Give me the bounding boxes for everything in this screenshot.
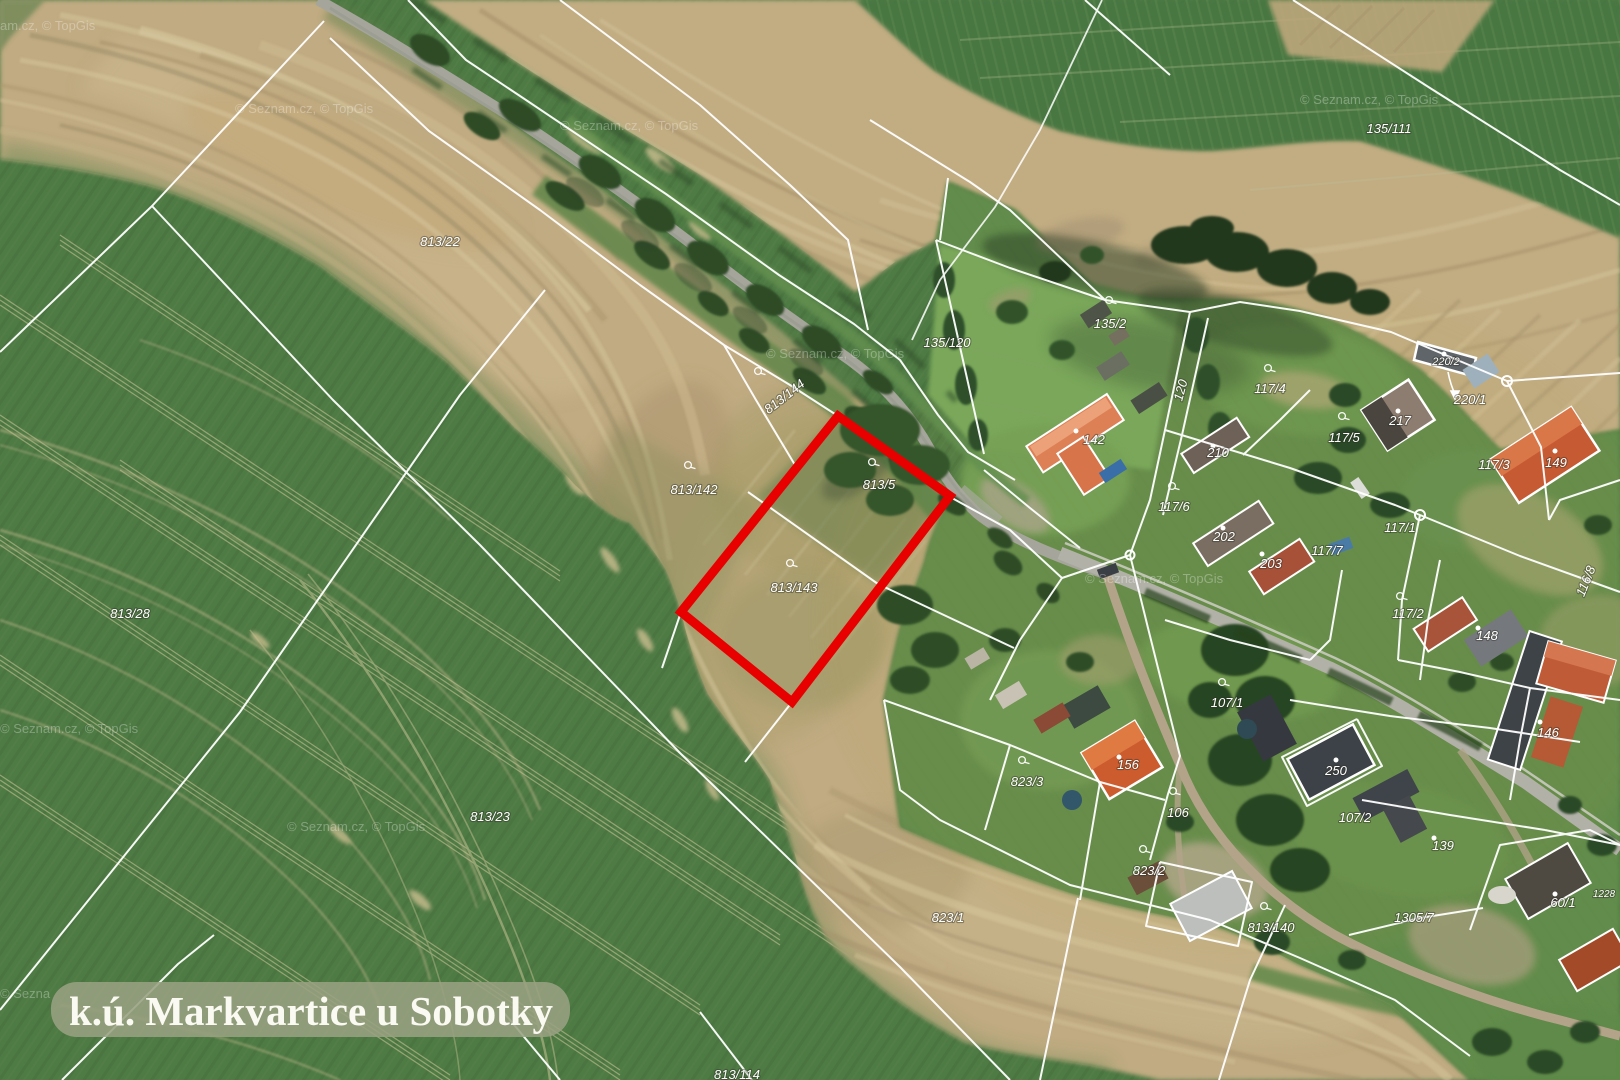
svg-text:am.cz, © TopGis: am.cz, © TopGis — [0, 18, 96, 33]
svg-text:k.ú. Markvartice u Sobotky: k.ú. Markvartice u Sobotky — [69, 988, 554, 1034]
svg-text:220/1: 220/1 — [1453, 392, 1487, 407]
svg-text:823/3: 823/3 — [1011, 774, 1044, 789]
svg-text:© Seznam.cz, © TopGis: © Seznam.cz, © TopGis — [560, 118, 699, 133]
svg-text:813/28: 813/28 — [110, 606, 151, 621]
svg-text:© Sezna: © Sezna — [0, 986, 51, 1001]
svg-text:107/2: 107/2 — [1339, 810, 1372, 825]
svg-text:117/5: 117/5 — [1328, 430, 1360, 445]
svg-text:117/2: 117/2 — [1392, 606, 1424, 621]
svg-text:813/140: 813/140 — [1248, 920, 1296, 935]
svg-text:142: 142 — [1083, 432, 1105, 447]
svg-text:© Seznam.cz, © TopGis: © Seznam.cz, © TopGis — [287, 819, 426, 834]
svg-text:250: 250 — [1324, 763, 1347, 778]
svg-text:© Seznam.cz, © TopGis: © Seznam.cz, © TopGis — [0, 721, 139, 736]
svg-text:148: 148 — [1476, 628, 1498, 643]
svg-text:© Seznam.cz, © TopGis: © Seznam.cz, © TopGis — [766, 346, 905, 361]
svg-text:203: 203 — [1259, 556, 1282, 571]
svg-text:1228: 1228 — [1593, 889, 1616, 900]
svg-text:117/3: 117/3 — [1478, 457, 1510, 472]
svg-text:117/7: 117/7 — [1311, 543, 1343, 558]
svg-text:217: 217 — [1388, 413, 1411, 428]
svg-text:813/143: 813/143 — [771, 580, 819, 595]
svg-text:117/6: 117/6 — [1158, 499, 1190, 514]
svg-text:60/1: 60/1 — [1550, 895, 1575, 910]
svg-text:210: 210 — [1206, 445, 1229, 460]
svg-text:813/23: 813/23 — [470, 809, 511, 824]
svg-text:202: 202 — [1212, 529, 1235, 544]
svg-text:117/1: 117/1 — [1384, 520, 1416, 535]
svg-text:220/2: 220/2 — [1431, 356, 1460, 368]
svg-text:© Seznam.cz, © TopGis: © Seznam.cz, © TopGis — [1300, 92, 1439, 107]
svg-text:813/22: 813/22 — [420, 234, 461, 249]
svg-text:156: 156 — [1117, 757, 1139, 772]
svg-text:135/111: 135/111 — [1366, 121, 1411, 136]
svg-text:106: 106 — [1167, 805, 1189, 820]
svg-text:© Seznam.cz, © TopGis: © Seznam.cz, © TopGis — [235, 101, 374, 116]
svg-text:1305/7: 1305/7 — [1394, 910, 1435, 925]
svg-text:135/120: 135/120 — [924, 335, 972, 350]
svg-text:© Seznam.cz, © TopGis: © Seznam.cz, © TopGis — [1085, 571, 1224, 586]
svg-text:139: 139 — [1432, 838, 1454, 853]
svg-text:107/1: 107/1 — [1211, 695, 1244, 710]
svg-text:813/114: 813/114 — [714, 1067, 760, 1080]
svg-text:149: 149 — [1545, 455, 1567, 470]
svg-text:117/4: 117/4 — [1254, 381, 1286, 396]
svg-text:135/2: 135/2 — [1094, 316, 1127, 331]
svg-text:813/5: 813/5 — [863, 477, 896, 492]
svg-text:813/142: 813/142 — [671, 482, 719, 497]
svg-text:823/2: 823/2 — [1133, 863, 1166, 878]
svg-text:823/1: 823/1 — [932, 910, 965, 925]
svg-text:146: 146 — [1537, 725, 1559, 740]
